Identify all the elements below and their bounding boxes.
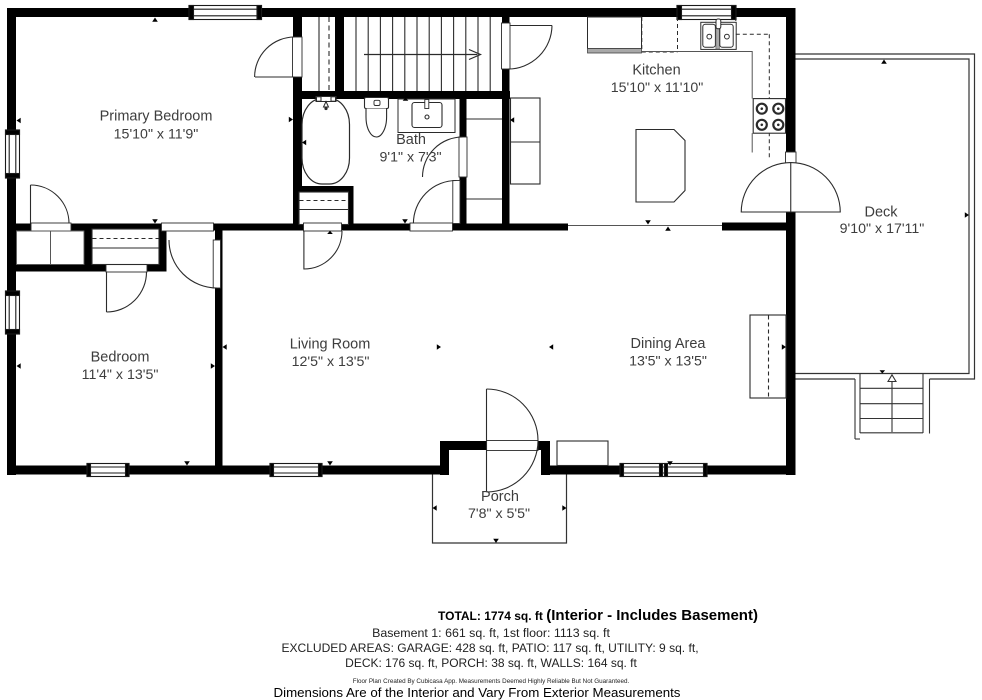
svg-text:EXCLUDED AREAS: GARAGE: 428 sq: EXCLUDED AREAS: GARAGE: 428 sq. ft, PATI… — [281, 641, 698, 655]
svg-text:Dimensions Are of the Interior: Dimensions Are of the Interior and Vary … — [274, 685, 681, 700]
svg-text:12'5" x 13'5": 12'5" x 13'5" — [292, 354, 370, 370]
svg-text:Primary Bedroom: Primary Bedroom — [100, 109, 213, 125]
svg-text:Porch: Porch — [481, 489, 519, 505]
svg-text:Basement 1: 661 sq. ft, 1st fl: Basement 1: 661 sq. ft, 1st floor: 1113 … — [372, 626, 610, 640]
svg-text:Living Room: Living Room — [290, 337, 371, 353]
svg-text:13'5" x 13'5": 13'5" x 13'5" — [629, 354, 707, 370]
svg-text:TOTAL: 1774 sq. ft (Interior -: TOTAL: 1774 sq. ft (Interior - Includes … — [438, 607, 758, 624]
svg-text:9'10" x 17'11": 9'10" x 17'11" — [840, 221, 925, 237]
svg-text:Bedroom: Bedroom — [91, 350, 150, 366]
svg-text:15'10" x 11'9": 15'10" x 11'9" — [114, 127, 199, 143]
svg-text:DECK: 176 sq. ft, PORCH: 38 sq: DECK: 176 sq. ft, PORCH: 38 sq. ft, WALL… — [345, 656, 637, 670]
svg-text:15'10" x 11'10": 15'10" x 11'10" — [611, 80, 704, 96]
svg-text:Floor Plan Created By Cubicasa: Floor Plan Created By Cubicasa App. Meas… — [353, 678, 630, 685]
svg-text:Kitchen: Kitchen — [632, 63, 680, 79]
svg-text:9'1" x 7'3": 9'1" x 7'3" — [379, 150, 441, 166]
svg-text:7'8" x 5'5": 7'8" x 5'5" — [468, 506, 530, 522]
svg-text:Deck: Deck — [864, 205, 898, 221]
svg-text:Dining Area: Dining Area — [631, 336, 707, 352]
svg-text:Bath: Bath — [396, 132, 426, 148]
svg-text:11'4" x 13'5": 11'4" x 13'5" — [82, 367, 159, 383]
